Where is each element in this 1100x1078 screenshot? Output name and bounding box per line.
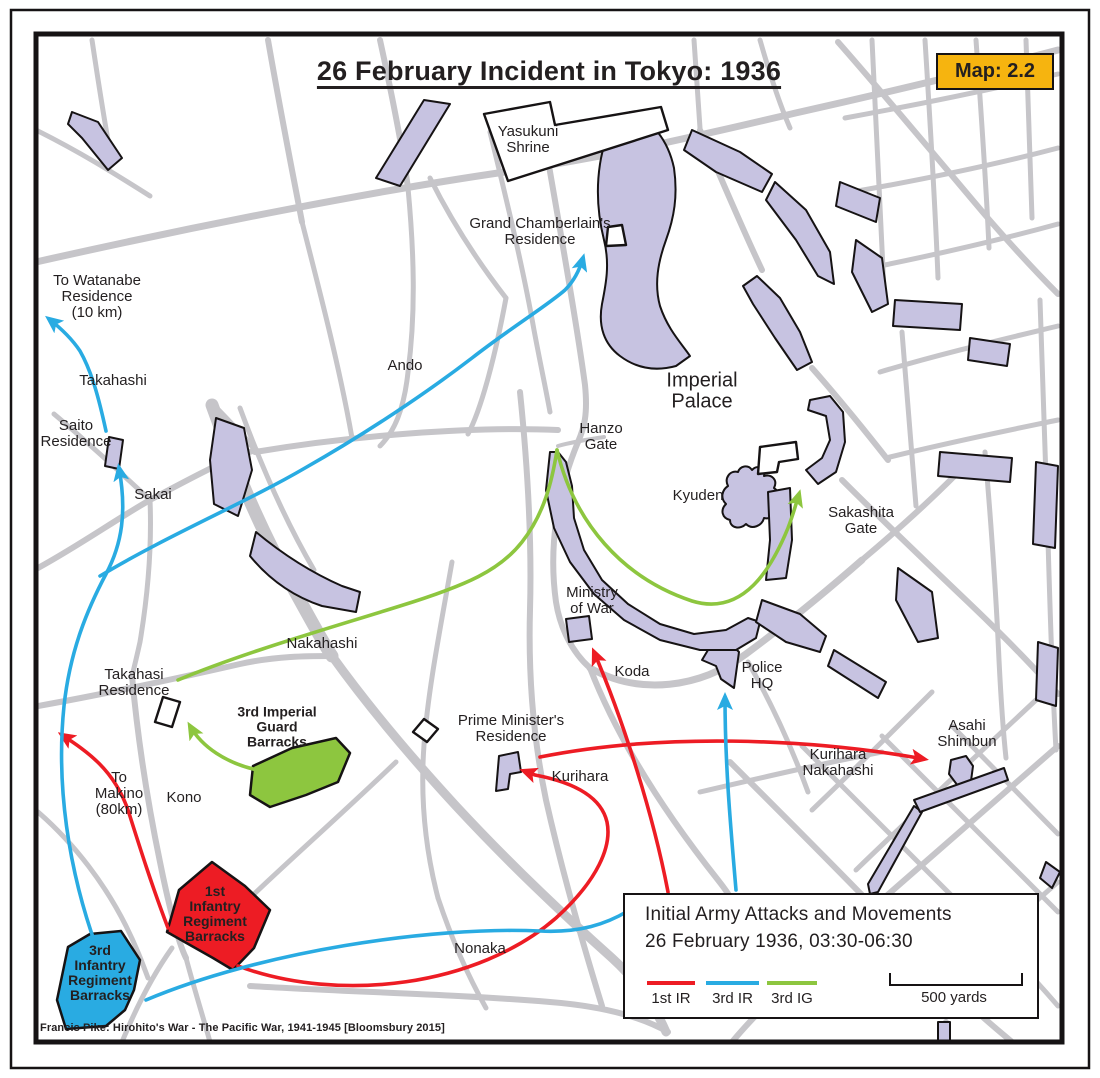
map-canvas: Yasukuni ShrineGrand Chamberlain's Resid… bbox=[0, 0, 1100, 1078]
saito-residence-site bbox=[105, 437, 123, 469]
route-nonaka-police-hq bbox=[725, 697, 736, 890]
scale-bar bbox=[889, 973, 1023, 986]
legend-item-1st-ir: 1st IR bbox=[647, 981, 695, 1007]
legend-title-line1: Initial Army Attacks and Movements bbox=[645, 904, 952, 926]
pm-residence-site bbox=[496, 752, 521, 791]
legend-swatch-green bbox=[767, 981, 817, 985]
ministry-of-war-site bbox=[566, 616, 592, 642]
route-ando-chamberlain bbox=[100, 258, 583, 576]
legend-swatch-red bbox=[647, 981, 695, 985]
takahasi-residence-site bbox=[155, 697, 180, 727]
3rd-infantry-regiment-barracks-shape bbox=[57, 931, 140, 1029]
map-number-badge: Map: 2.2 bbox=[936, 53, 1054, 90]
scale-label: 500 yards bbox=[889, 989, 1019, 1006]
legend-label: 1st IR bbox=[647, 990, 695, 1007]
attribution: Francis Pike: Hirohito's War - The Pacif… bbox=[40, 1022, 445, 1034]
grand-chamberlains-site bbox=[606, 225, 626, 246]
legend-swatch-blue bbox=[706, 981, 759, 985]
page-title: 26 February Incident in Tokyo: 1936 bbox=[249, 56, 849, 87]
legend-item-3rd-ig: 3rd IG bbox=[767, 981, 817, 1007]
legend-label: 3rd IR bbox=[706, 990, 759, 1007]
3rd-imperial-guard-barracks-shape bbox=[250, 738, 350, 807]
legend-label: 3rd IG bbox=[767, 990, 817, 1007]
route-3rd-ig-takahasi bbox=[190, 726, 257, 770]
legend-title-line2: 26 February 1936, 03:30-06:30 bbox=[645, 931, 913, 953]
legend-box: Initial Army Attacks and Movements 26 Fe… bbox=[623, 893, 1039, 1019]
legend-item-3rd-ir: 3rd IR bbox=[706, 981, 759, 1007]
